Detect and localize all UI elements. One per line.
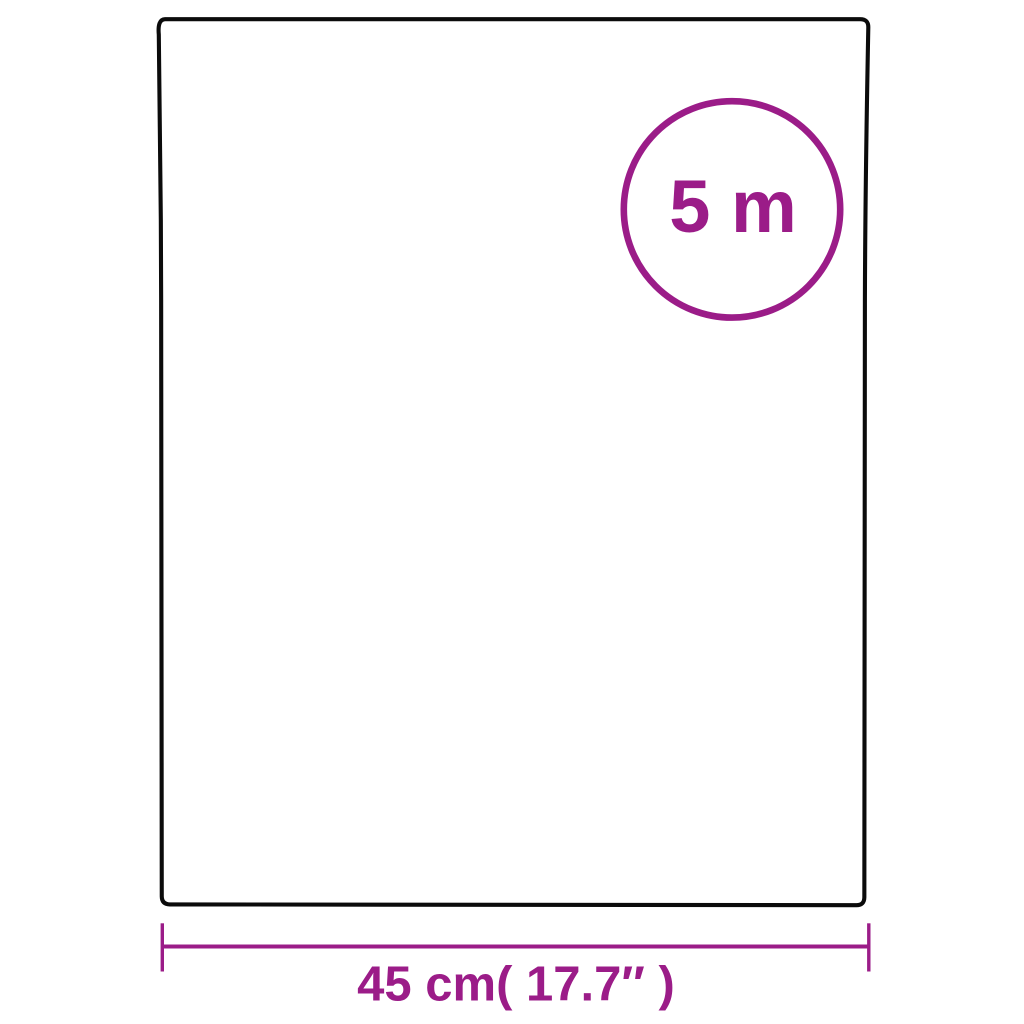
svg-text:5 m: 5 m (669, 165, 797, 248)
svg-text:45 cm( 17.7″ ): 45 cm( 17.7″ ) (357, 958, 675, 1012)
